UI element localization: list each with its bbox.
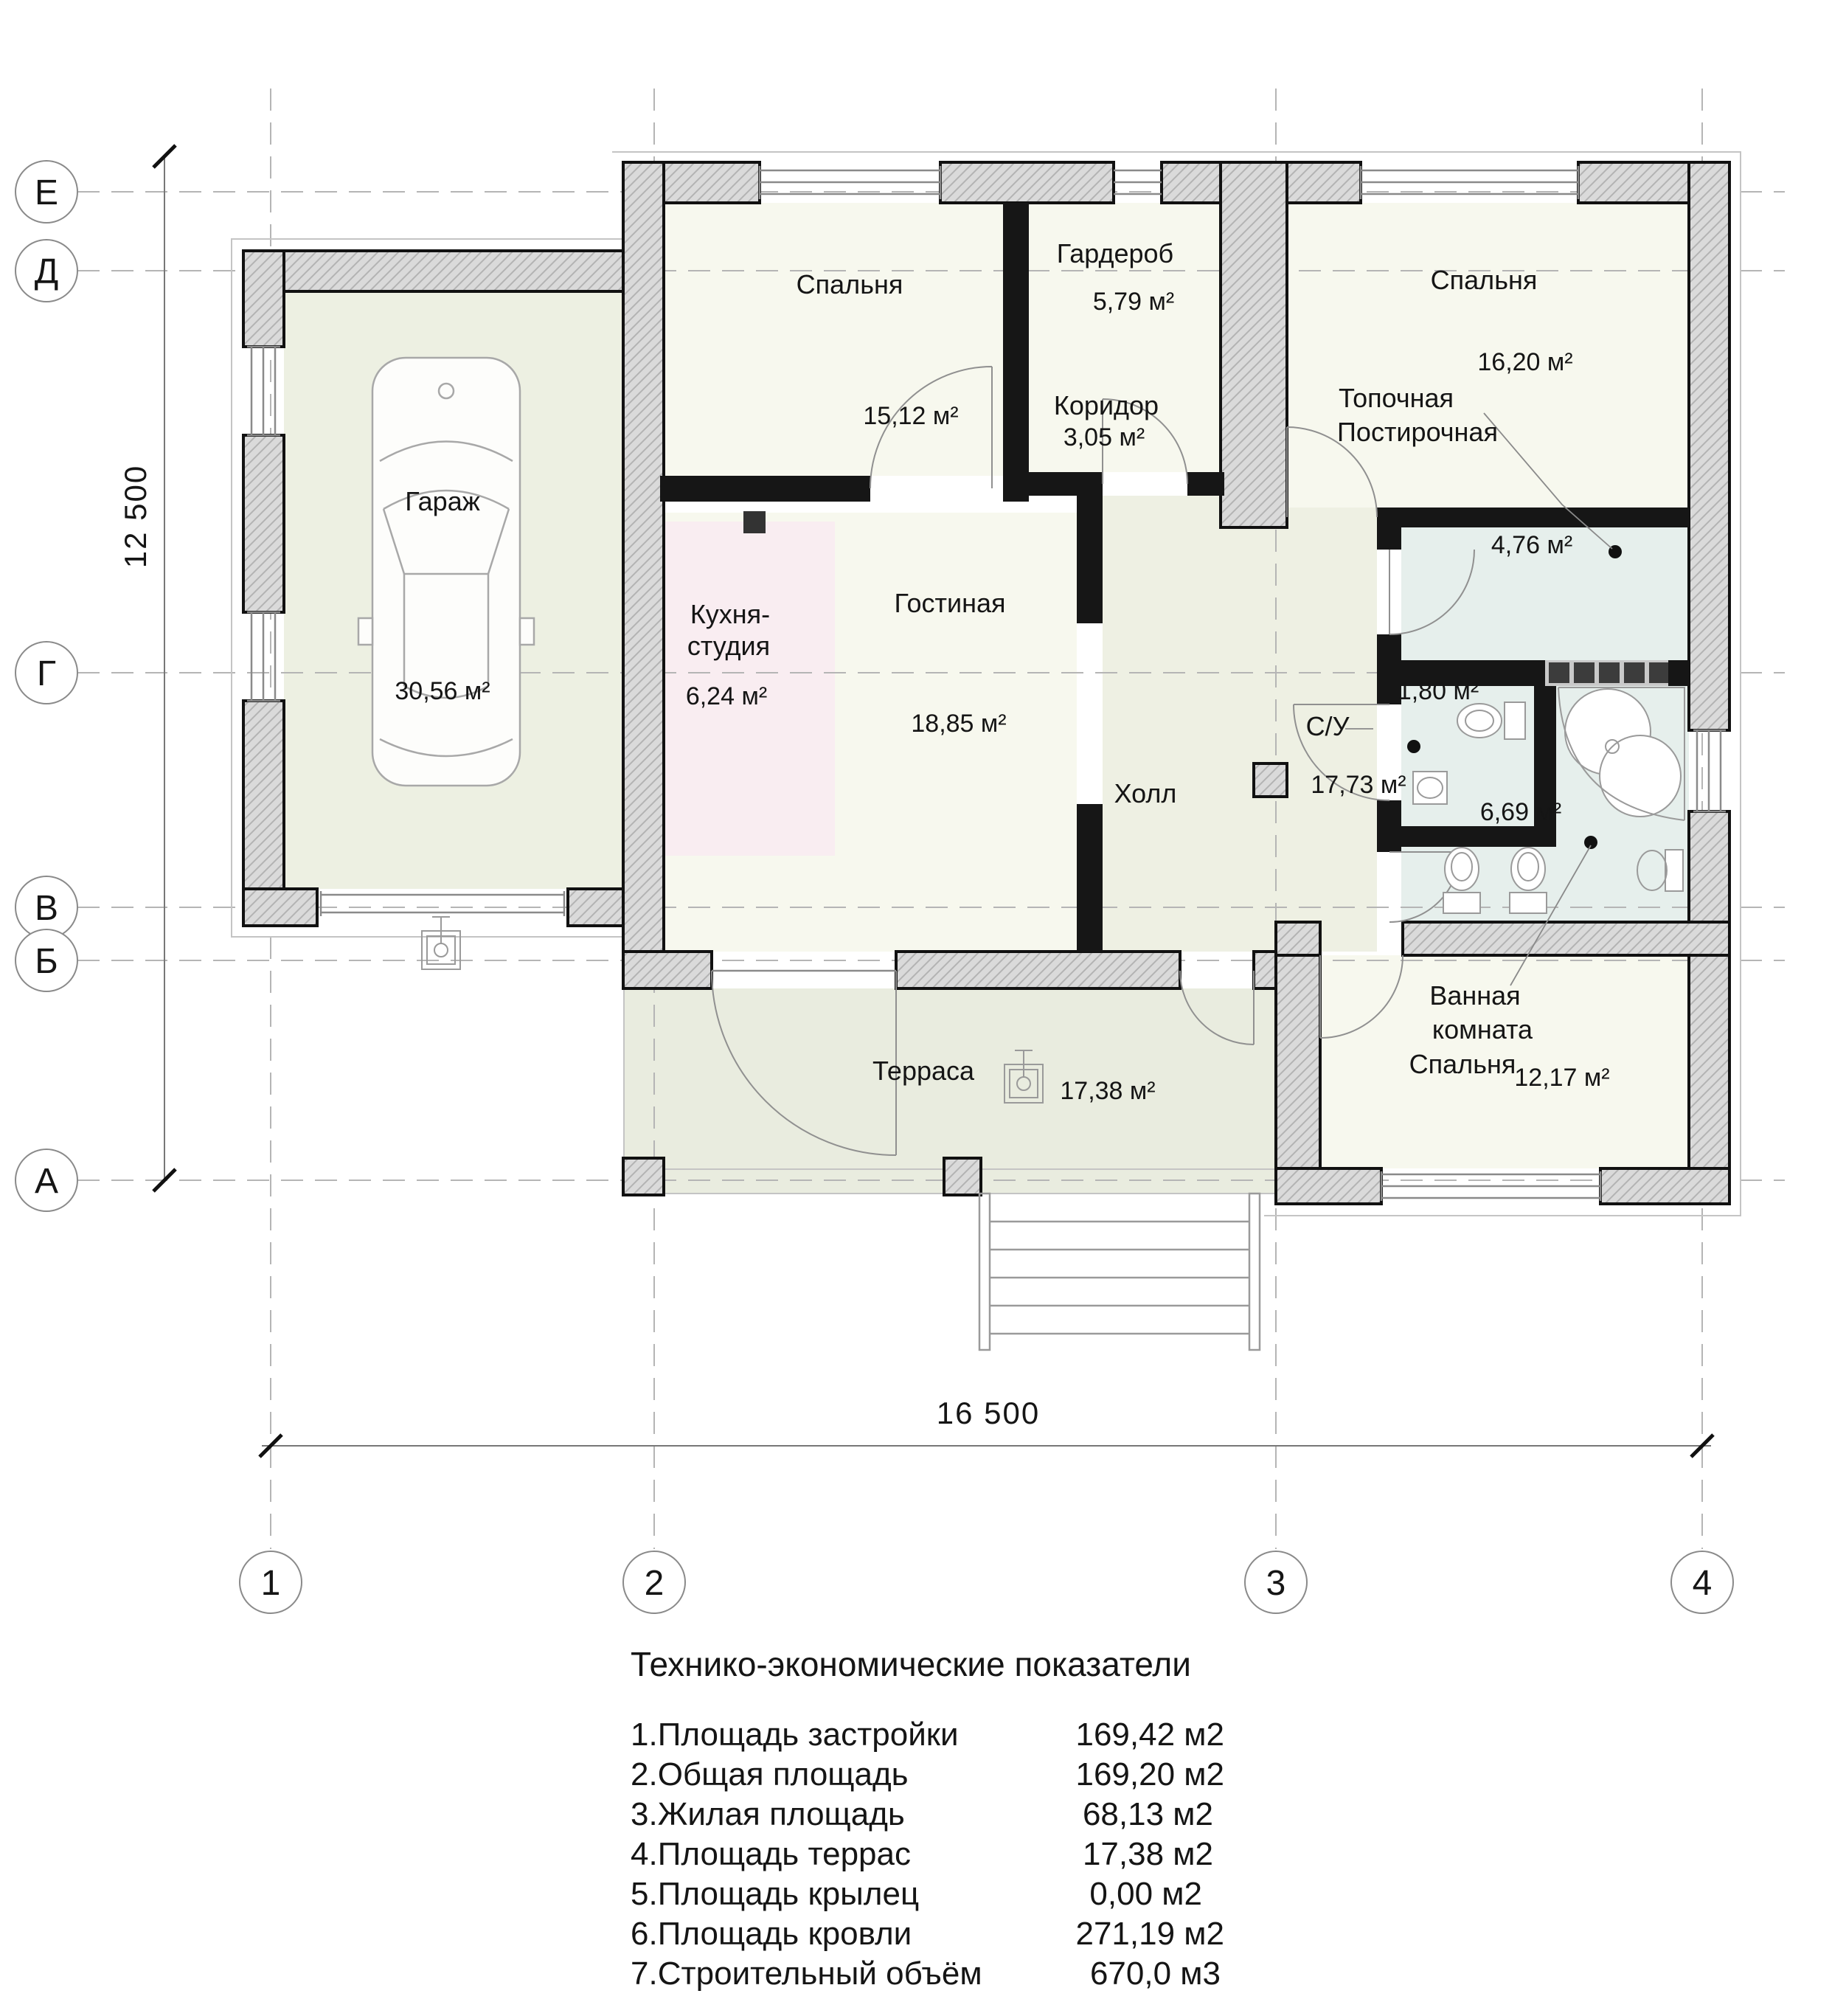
room-area-label: 12,17 м² <box>1514 1064 1609 1092</box>
light-point-icon <box>1584 836 1597 849</box>
indicator-value: 68,13 м2 <box>1083 1796 1213 1832</box>
room-area-label: 6,69 м² <box>1480 798 1561 826</box>
car-icon <box>358 358 534 786</box>
sink-icon <box>1665 850 1683 891</box>
room-name-label: Гараж <box>405 486 480 516</box>
terrace-column-left <box>623 1158 664 1195</box>
axis-row-label: Д <box>35 252 59 291</box>
structural-column <box>1254 763 1287 797</box>
room-name-label: Постирочная <box>1337 417 1498 447</box>
indicator-value: 670,0 м3 <box>1090 1956 1221 1992</box>
room-area-label: 17,73 м² <box>1311 771 1406 799</box>
window-bedroom-right-icon <box>1361 166 1578 199</box>
indicator-label: 2.Общая площадь <box>631 1756 909 1792</box>
indicator-label: 4.Площадь террас <box>631 1836 911 1872</box>
room-name-label: Холл <box>1114 778 1177 808</box>
room-area-label: 18,85 м² <box>911 710 1006 738</box>
room-name-label: Спальня <box>1409 1049 1516 1079</box>
floor-plan-page: 12 500 16 500 Е Д Г В Б А 1 2 3 4 Гараж … <box>0 0 1846 2016</box>
room-name-label: студия <box>687 631 770 661</box>
indicator-value: 169,42 м2 <box>1075 1717 1224 1753</box>
room-bedroom-left <box>660 203 1003 476</box>
room-area-label: 17,38 м² <box>1060 1077 1155 1105</box>
dim-vertical: 12 500 <box>118 465 153 568</box>
garage-gate-icon <box>321 891 564 916</box>
room-name-label: Гостиная <box>894 588 1005 618</box>
toilet-icon <box>1511 848 1545 890</box>
drain-fixture-icon <box>422 917 460 969</box>
room-area-label: 15,12 м² <box>863 402 958 430</box>
toilet-tank-icon <box>1505 702 1525 739</box>
axis-col-label: 2 <box>645 1564 665 1603</box>
room-name-label: С/У <box>1306 711 1350 741</box>
window-garage-2-icon <box>247 612 280 701</box>
window-garage-1-icon <box>247 347 280 435</box>
axis-row-label: Г <box>37 654 56 693</box>
indicator-label: 5.Площадь крылец <box>631 1876 919 1912</box>
room-area-label: 4,76 м² <box>1491 531 1572 559</box>
axis-col-label: 3 <box>1266 1564 1286 1603</box>
indicator-label: 3.Жилая площадь <box>631 1796 905 1832</box>
dim-horizontal: 16 500 <box>937 1396 1040 1430</box>
room-name-label: Топочная <box>1339 383 1454 413</box>
window-wardrobe-icon <box>1114 170 1162 194</box>
indicators-title: Технико-экономические показатели <box>631 1645 1191 1683</box>
room-name-label: комната <box>1432 1014 1533 1045</box>
room-name-label: Терраса <box>872 1056 975 1086</box>
axis-row-label: А <box>35 1162 58 1201</box>
axis-row-label: Е <box>35 173 58 212</box>
glass-block-wall <box>1545 660 1668 686</box>
indicator-value: 17,38 м2 <box>1083 1836 1213 1872</box>
window-bath-bedroom-icon <box>1381 1171 1600 1201</box>
floor-plan-svg: 12 500 16 500 Е Д Г В Б А 1 2 3 4 Гараж … <box>0 0 1846 2016</box>
room-name-label: Спальня <box>797 269 903 299</box>
toilet-icon <box>1445 848 1479 890</box>
terrace-column-mid <box>944 1158 981 1195</box>
room-name-label: Кухня- <box>690 599 770 629</box>
indicator-value: 169,20 м2 <box>1075 1756 1224 1792</box>
indicator-label: 1.Площадь застройки <box>631 1717 959 1753</box>
indicator-value: 0,00 м2 <box>1089 1876 1202 1912</box>
window-bedroom-left-icon <box>760 166 940 199</box>
room-name-label: Коридор <box>1054 390 1159 420</box>
toilet-icon <box>1457 704 1502 738</box>
indicators-table: Технико-экономические показатели 1.Площа… <box>631 1645 1224 1992</box>
indicator-value: 271,19 м2 <box>1075 1916 1224 1952</box>
indicator-label: 7.Строительный объём <box>631 1956 982 1992</box>
axis-col-label: 4 <box>1693 1564 1713 1603</box>
kitchen-vent-icon <box>743 511 766 533</box>
axis-row-label: В <box>35 889 58 928</box>
room-area-label: 5,79 м² <box>1093 288 1174 316</box>
room-area-label: 1,80 м² <box>1398 677 1479 705</box>
room-area-label: 3,05 м² <box>1063 423 1145 451</box>
room-area-label: 16,20 м² <box>1477 348 1572 376</box>
window-bathroom-icon <box>1693 730 1726 811</box>
stairs-icon <box>979 1194 1260 1350</box>
room-area-label: 30,56 м² <box>395 677 490 705</box>
light-point-icon <box>1407 740 1420 753</box>
room-area-label: 6,24 м² <box>686 682 767 710</box>
room-name-label: Гардероб <box>1057 238 1173 269</box>
indicator-label: 6.Площадь кровли <box>631 1916 912 1952</box>
room-name-label: Спальня <box>1431 265 1538 295</box>
room-name-label: Ванная <box>1429 980 1520 1011</box>
axis-row-label: Б <box>35 942 58 981</box>
axis-col-label: 1 <box>261 1564 281 1603</box>
